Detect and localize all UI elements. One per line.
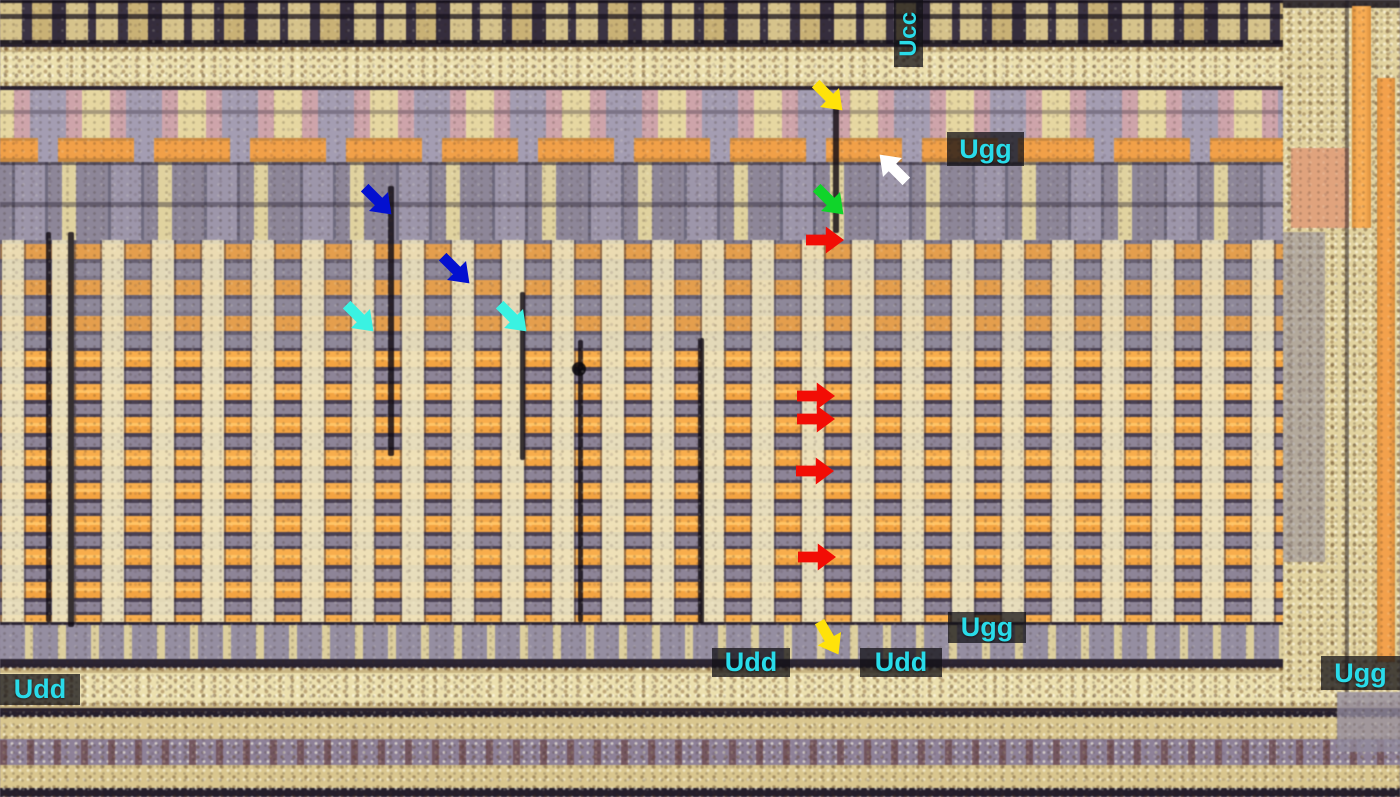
annotation-arrow-red-right [806,226,844,254]
voltage-label-udd-bottom-left: Udd [0,674,80,705]
annotation-arrow-cyan-down-right [337,295,384,342]
voltage-label-text: Ugg [961,614,1013,641]
voltage-label-text: Ucc [897,11,921,57]
annotation-arrow-blue-down-right [433,247,480,294]
voltage-label-ugg-top: Ugg [947,132,1024,166]
annotation-arrow-red-right [797,405,835,433]
ic-die-photo: UccUggUggUddUddUddUgg [0,0,1400,797]
annotation-arrow-red-right [797,382,835,410]
voltage-label-text: Ugg [959,136,1011,163]
voltage-label-text: Udd [875,649,927,676]
annotation-arrow-green-down-right [807,178,854,225]
annotation-arrow-cyan-down-right [490,295,537,342]
voltage-label-ugg-middle: Ugg [948,612,1026,643]
voltage-label-text: Ugg [1334,660,1386,687]
annotation-arrow-red-right [796,457,834,485]
annotation-arrow-yellow-down-right [806,74,853,121]
annotation-arrow-white-up-left [870,145,917,192]
voltage-label-text: Udd [14,676,66,703]
voltage-label-ucc-top: Ucc [894,0,923,67]
voltage-label-text: Udd [725,649,777,676]
voltage-label-udd-middle-right: Udd [860,648,942,677]
annotation-arrow-yellow-down-right [807,615,850,662]
annotation-overlay: UccUggUggUddUddUddUgg [0,0,1400,797]
annotation-arrow-blue-down-right [355,178,402,225]
voltage-label-ugg-bottom-right: Ugg [1321,656,1400,690]
annotation-arrow-red-right [798,543,836,571]
voltage-label-udd-middle-left: Udd [712,648,790,677]
